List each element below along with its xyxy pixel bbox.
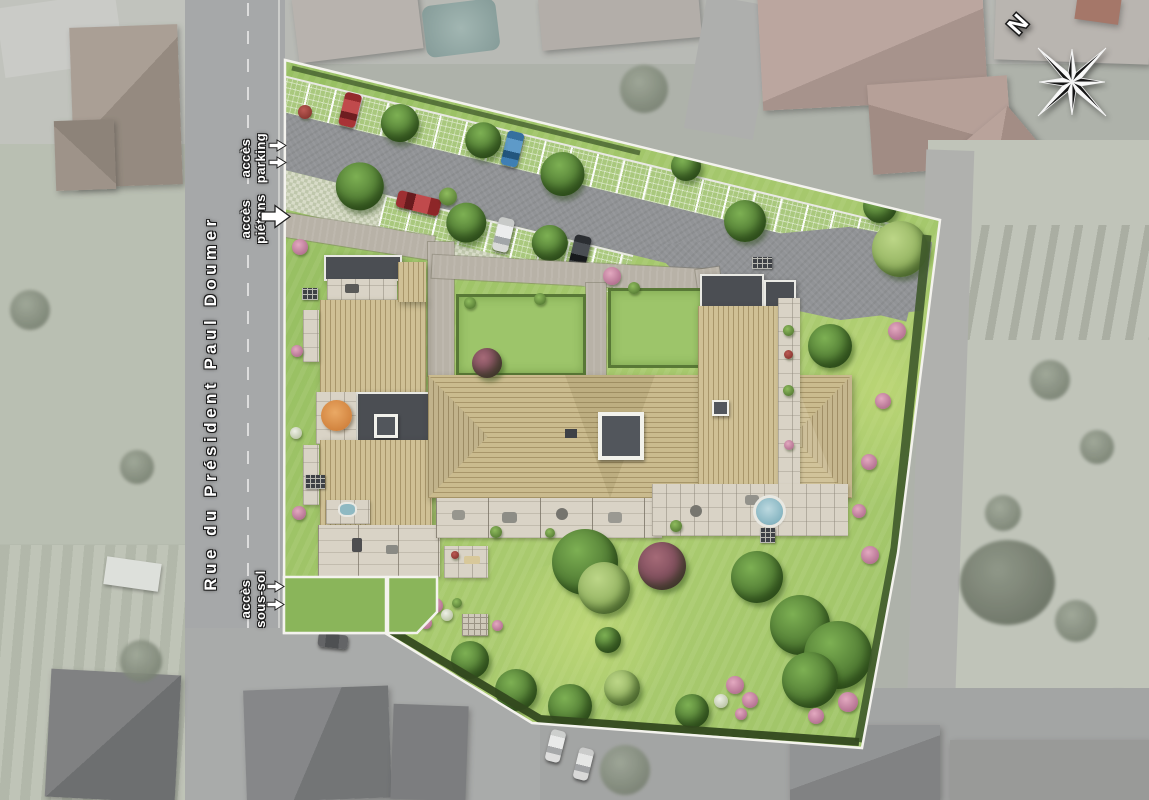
skylight: [374, 414, 398, 438]
vent-grid: [302, 288, 318, 300]
parking-arrow-icon: [268, 139, 287, 152]
site-plan-canvas: { "street": { "name": "Rue du Président …: [0, 0, 1149, 800]
parking-arrow-icon: [268, 156, 287, 169]
balcony-shrub: [783, 385, 794, 396]
garden-tree: [595, 627, 621, 653]
street-name-text: Rue du Président Paul Doumer: [201, 215, 221, 590]
skylight-central: [598, 412, 644, 460]
left-wing-garden-terraces: [318, 525, 440, 577]
access-parking-line1: accès: [238, 139, 253, 178]
garden-tree: [548, 684, 592, 728]
parked-car-sideroad: [317, 632, 348, 649]
background-tree: [1055, 600, 1097, 642]
courtyard-path: [586, 283, 606, 377]
flower-shrub: [861, 546, 879, 564]
right-wing-roof: [698, 306, 778, 484]
flower-shrub: [603, 267, 621, 285]
flower-shrub: [291, 345, 303, 357]
street-name-label: Rue du Président Paul Doumer: [202, 163, 220, 643]
background-pool: [421, 0, 501, 58]
garden-tree: [675, 694, 709, 728]
flower-shrub: [808, 708, 824, 724]
background-tree: [1030, 360, 1070, 400]
spa-tub: [340, 504, 355, 515]
garden-tree: [724, 200, 766, 242]
vent-grid: [305, 475, 325, 489]
access-pietons-line1: accès: [238, 200, 253, 239]
background-tree: [1080, 430, 1114, 464]
play-equipment: [464, 556, 480, 564]
flower-shrub: [292, 506, 306, 520]
garden-grid-patio: [462, 614, 488, 636]
terrace-shrub: [490, 526, 502, 538]
garden-tree-light: [604, 670, 640, 706]
garden-tree: [782, 652, 838, 708]
right-wing-flat-roof: [700, 274, 764, 310]
flower-bed: [492, 620, 503, 631]
vent-grid: [760, 528, 775, 543]
flower-bed: [420, 617, 432, 629]
background-tree: [620, 65, 668, 113]
balcony-shrub: [783, 325, 794, 336]
basement-arrow-icon: [266, 598, 285, 611]
existing-roof-bottom-right: [950, 740, 1149, 800]
path-shrub: [628, 282, 640, 294]
terrace-furniture: [452, 510, 465, 520]
terrace-shrub: [670, 520, 682, 532]
balcony-shrub: [784, 440, 794, 450]
terrace-round-table: [556, 508, 568, 520]
compass-north-letter: N: [1002, 9, 1034, 40]
left-wing-roof-north: [320, 300, 426, 393]
courtyard-shrub-burgundy: [472, 348, 502, 378]
flower-bed: [726, 676, 744, 694]
flower-shrub: [838, 692, 858, 712]
background-tree-large: [960, 540, 1055, 625]
path-shrub: [464, 297, 476, 309]
left-wing-balcony: [303, 310, 319, 362]
flower-shrub: [290, 427, 302, 439]
garden-fountain: [756, 498, 783, 525]
flower-shrub: [888, 322, 906, 340]
existing-dark-roof2: [243, 686, 392, 800]
existing-dark-roof3: [390, 704, 468, 800]
access-parking-line2: parking: [253, 133, 268, 183]
terrace-round-table: [690, 505, 702, 517]
balcony-shrub: [784, 350, 793, 359]
terrace-furniture: [745, 495, 759, 505]
terrace-table: [345, 284, 359, 293]
skylight-small: [712, 400, 729, 416]
terrace-sofa: [502, 512, 517, 523]
flower-bed: [714, 694, 728, 708]
street-curb-line: [278, 0, 280, 635]
terrace-shrub: [545, 528, 555, 538]
flower-bed: [441, 609, 453, 621]
background-tree: [120, 450, 154, 484]
garden-tree: [451, 641, 489, 679]
orange-parasol: [321, 400, 352, 431]
terrace-furniture: [386, 545, 398, 554]
flower-shrub: [292, 239, 308, 255]
vent-grid: [752, 257, 772, 269]
flower-bed: [428, 598, 443, 613]
flower-shrub: [875, 393, 891, 409]
background-tree: [10, 290, 50, 330]
flower-bed: [742, 692, 758, 708]
left-wing-roof-annex: [398, 262, 426, 302]
left-wing-roof-terrace: [327, 279, 397, 300]
garden-tree-light: [872, 221, 928, 277]
access-soussol-line1: accès: [238, 580, 253, 619]
background-tree: [600, 745, 650, 795]
compass-rose: N: [1000, 0, 1145, 150]
play-equipment: [451, 551, 459, 559]
flower-shrub: [861, 454, 877, 470]
terrace-furniture: [608, 512, 622, 523]
flower-bed: [735, 708, 747, 720]
existing-house-wing-left: [54, 119, 116, 191]
left-wing-flat-roof: [324, 255, 402, 281]
pedestrian-arrow-icon: [260, 204, 291, 229]
garden-tree: [808, 324, 852, 368]
garden-tree-light: [578, 562, 630, 614]
flower-shrub: [852, 504, 866, 518]
garden-tree: [731, 551, 783, 603]
basement-arrow-icon: [266, 580, 285, 593]
garden-tree-burgundy: [638, 542, 686, 590]
existing-dark-roof1: [45, 669, 182, 800]
courtyard-lawn: [608, 288, 706, 368]
roof-vent: [565, 429, 577, 438]
background-tree: [120, 640, 162, 682]
background-tree: [985, 495, 1021, 531]
path-shrub: [534, 293, 546, 305]
terrace-bbq: [352, 538, 362, 552]
flower-bed: [452, 598, 462, 608]
flower-shrub: [298, 105, 312, 119]
